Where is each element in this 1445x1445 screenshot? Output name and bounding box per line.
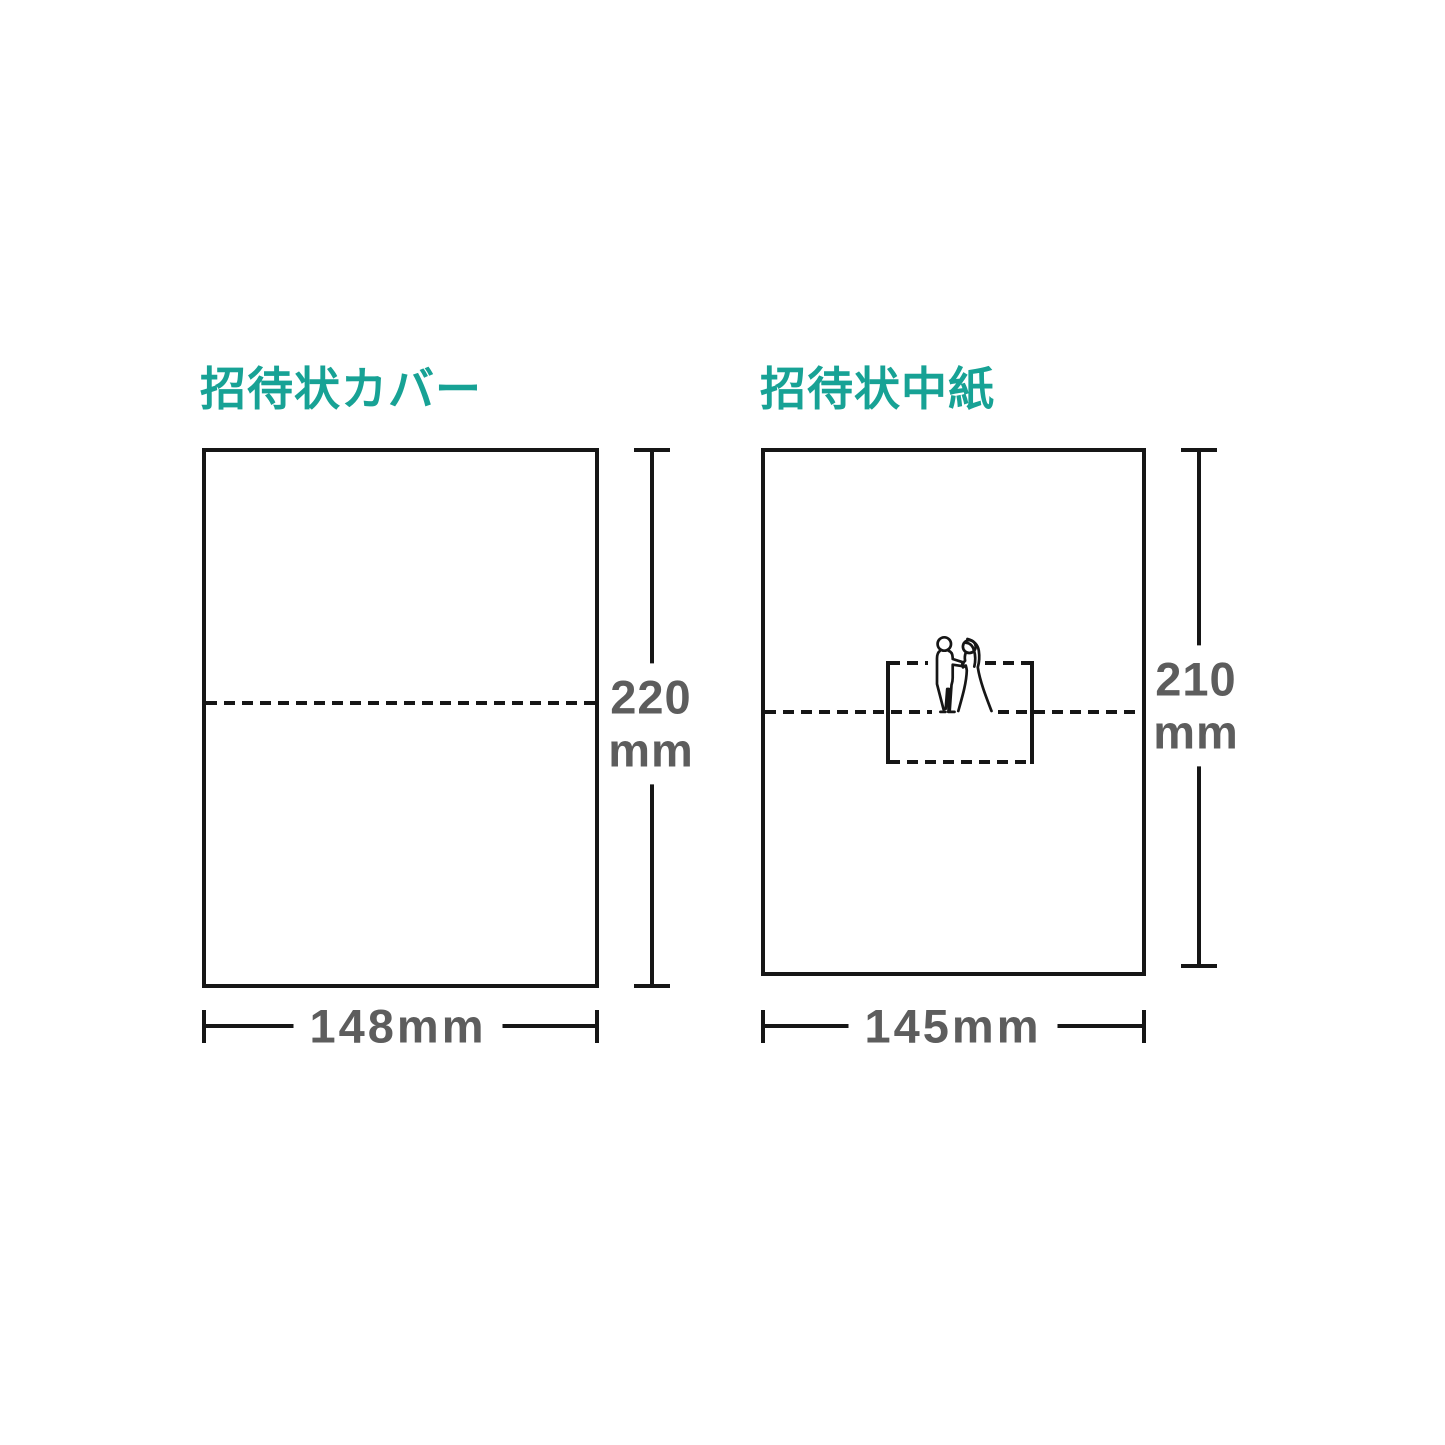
insert-title: 招待状中紙	[760, 366, 995, 412]
bride-figure	[958, 639, 991, 711]
cover-height-label: 220 mm	[602, 663, 700, 784]
cover-height-unit: mm	[608, 724, 694, 777]
cover-panel	[204, 450, 670, 1043]
groom-figure	[937, 637, 964, 712]
cover-paper-outline	[204, 450, 597, 986]
insert-height-value: 210	[1153, 653, 1239, 706]
bride-groom-icon	[937, 637, 992, 712]
cover-title: 招待状カバー	[200, 366, 482, 412]
spec-diagram: 招待状カバー 招待状中紙 220 mm 210 mm 148mm 145mm	[0, 0, 1445, 1445]
insert-width-label: 145mm	[849, 997, 1058, 1056]
cover-height-value: 220	[608, 671, 694, 724]
insert-height-unit: mm	[1153, 706, 1239, 759]
insert-height-label: 210 mm	[1147, 645, 1245, 766]
cover-width-label: 148mm	[294, 997, 503, 1056]
